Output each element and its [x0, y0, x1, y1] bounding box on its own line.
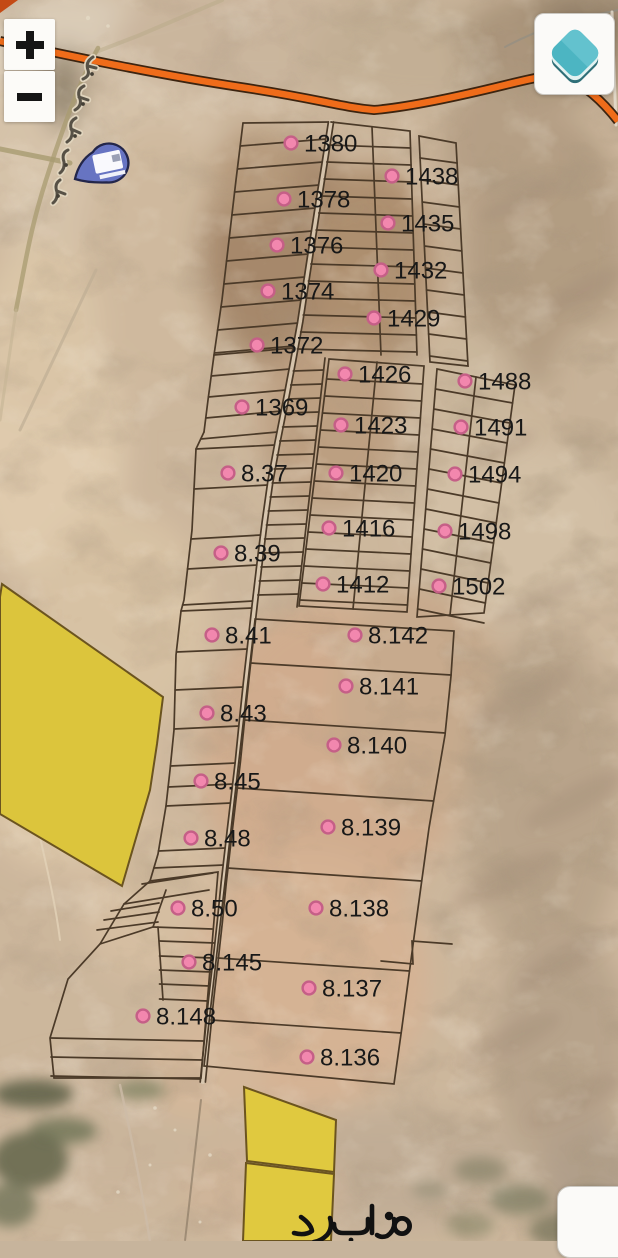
- svg-text:8.43: 8.43: [220, 701, 267, 728]
- svg-text:1369: 1369: [255, 395, 308, 422]
- svg-text:8.48: 8.48: [204, 826, 251, 853]
- svg-text:1376: 1376: [290, 233, 343, 260]
- svg-text:1432: 1432: [394, 258, 447, 285]
- svg-text:8.50: 8.50: [191, 896, 238, 923]
- svg-text:1416: 1416: [342, 516, 395, 543]
- svg-text:8.139: 8.139: [341, 815, 401, 842]
- svg-text:1426: 1426: [358, 362, 411, 389]
- svg-text:1372: 1372: [270, 333, 323, 360]
- svg-text:1412: 1412: [336, 572, 389, 599]
- svg-text:8.148: 8.148: [156, 1004, 216, 1031]
- svg-text:8.138: 8.138: [329, 896, 389, 923]
- svg-text:1420: 1420: [349, 461, 402, 488]
- svg-text:1491: 1491: [474, 415, 527, 442]
- svg-text:1498: 1498: [458, 519, 511, 546]
- svg-text:1429: 1429: [387, 306, 440, 333]
- svg-text:1438: 1438: [405, 164, 458, 191]
- svg-text:1378: 1378: [297, 187, 350, 214]
- svg-text:1494: 1494: [468, 462, 521, 489]
- svg-text:8.140: 8.140: [347, 733, 407, 760]
- svg-text:8.41: 8.41: [225, 623, 272, 650]
- svg-text:8.145: 8.145: [202, 950, 262, 977]
- svg-text:1488: 1488: [478, 369, 531, 396]
- svg-text:1423: 1423: [354, 413, 407, 440]
- svg-text:8.141: 8.141: [359, 674, 419, 701]
- svg-text:8.136: 8.136: [320, 1045, 380, 1072]
- svg-text:8.142: 8.142: [368, 623, 428, 650]
- svg-text:8.37: 8.37: [241, 461, 288, 488]
- svg-text:8.39: 8.39: [234, 541, 281, 568]
- svg-text:1374: 1374: [281, 279, 334, 306]
- svg-text:1435: 1435: [401, 211, 454, 238]
- svg-text:8.45: 8.45: [214, 769, 261, 796]
- svg-text:1502: 1502: [452, 574, 505, 601]
- svg-text:8.137: 8.137: [322, 976, 382, 1003]
- svg-text:1380: 1380: [304, 131, 357, 158]
